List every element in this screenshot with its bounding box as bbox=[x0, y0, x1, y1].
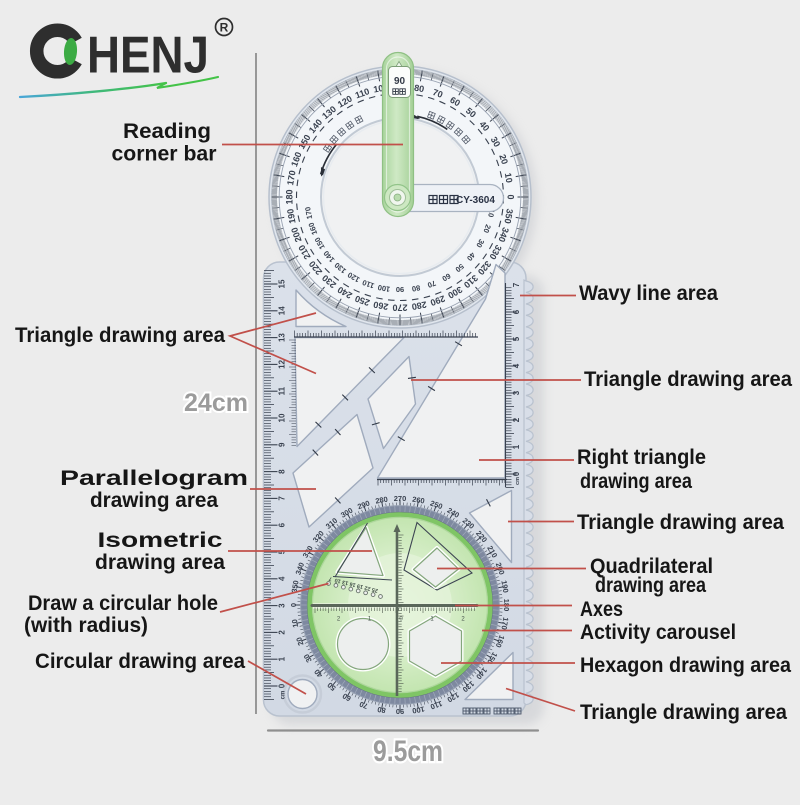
svg-text:CY-3604: CY-3604 bbox=[456, 195, 495, 206]
svg-text:Triangle drawing area: Triangle drawing area bbox=[577, 511, 784, 534]
svg-text:3: 3 bbox=[512, 390, 521, 395]
svg-text:Parallelogram: Parallelogram bbox=[60, 467, 248, 490]
svg-text:8: 8 bbox=[278, 469, 287, 474]
svg-text:4: 4 bbox=[278, 576, 287, 581]
svg-text:cm: cm bbox=[281, 691, 287, 700]
svg-text:1: 1 bbox=[278, 656, 287, 661]
svg-text:6: 6 bbox=[512, 309, 521, 314]
svg-text:80: 80 bbox=[411, 283, 421, 293]
svg-text:7: 7 bbox=[512, 282, 521, 287]
svg-text:90: 90 bbox=[396, 285, 404, 294]
svg-text:90: 90 bbox=[394, 76, 406, 87]
svg-text:Hexagon drawing area: Hexagon drawing area bbox=[580, 654, 791, 677]
svg-text:90: 90 bbox=[396, 707, 404, 716]
svg-text:24cm: 24cm bbox=[184, 389, 248, 417]
svg-text:cm: cm bbox=[515, 477, 521, 485]
svg-text:7: 7 bbox=[278, 496, 287, 501]
svg-text:Triangle drawing area: Triangle drawing area bbox=[584, 368, 792, 391]
svg-text:0: 0 bbox=[512, 471, 521, 476]
svg-text:11: 11 bbox=[278, 386, 287, 395]
svg-text:R: R bbox=[220, 21, 229, 35]
svg-text:Axes: Axes bbox=[580, 598, 623, 621]
svg-text:270: 270 bbox=[394, 494, 407, 503]
svg-text:Triangle drawing area: Triangle drawing area bbox=[15, 324, 225, 347]
svg-text:13: 13 bbox=[278, 333, 287, 342]
svg-text:14: 14 bbox=[278, 306, 287, 315]
svg-text:Draw a circular hole: Draw a circular hole bbox=[28, 592, 218, 615]
svg-text:3: 3 bbox=[278, 603, 287, 608]
svg-text:5: 5 bbox=[512, 336, 521, 341]
svg-text:15: 15 bbox=[278, 279, 287, 288]
svg-text:180: 180 bbox=[285, 189, 295, 204]
svg-text:2: 2 bbox=[278, 630, 287, 635]
svg-text:Activity carousel: Activity carousel bbox=[580, 621, 736, 644]
svg-text:Wavy line area: Wavy line area bbox=[579, 282, 718, 305]
svg-text:drawing area: drawing area bbox=[595, 574, 706, 597]
svg-text:9: 9 bbox=[278, 442, 287, 447]
svg-text:HENJ: HENJ bbox=[87, 27, 209, 85]
svg-text:0: 0 bbox=[289, 603, 298, 607]
svg-text:6: 6 bbox=[278, 522, 287, 527]
svg-text:9.5cm: 9.5cm bbox=[373, 735, 443, 768]
svg-text:Reading: Reading bbox=[123, 120, 211, 143]
svg-text:0: 0 bbox=[278, 683, 287, 688]
svg-text:Triangle drawing area: Triangle drawing area bbox=[580, 701, 787, 724]
svg-text:Right triangle: Right triangle bbox=[577, 446, 706, 469]
svg-text:80: 80 bbox=[413, 83, 425, 95]
svg-text:80: 80 bbox=[377, 705, 387, 715]
svg-text:10: 10 bbox=[503, 172, 515, 184]
svg-text:270: 270 bbox=[392, 302, 407, 312]
svg-text:(with radius): (with radius) bbox=[24, 614, 148, 637]
svg-text:2: 2 bbox=[512, 417, 521, 422]
svg-text:1: 1 bbox=[512, 444, 521, 449]
svg-text:Circular drawing area: Circular drawing area bbox=[35, 650, 245, 673]
svg-text:drawing area: drawing area bbox=[90, 489, 218, 512]
svg-text:10: 10 bbox=[278, 413, 287, 422]
svg-text:drawing area: drawing area bbox=[95, 551, 225, 574]
svg-text:10: 10 bbox=[290, 619, 300, 629]
svg-text:corner bar: corner bar bbox=[112, 143, 217, 166]
svg-text:4: 4 bbox=[512, 363, 521, 368]
svg-text:drawing area: drawing area bbox=[580, 470, 692, 493]
svg-text:Isometric: Isometric bbox=[98, 529, 223, 552]
svg-text:0: 0 bbox=[505, 194, 515, 199]
